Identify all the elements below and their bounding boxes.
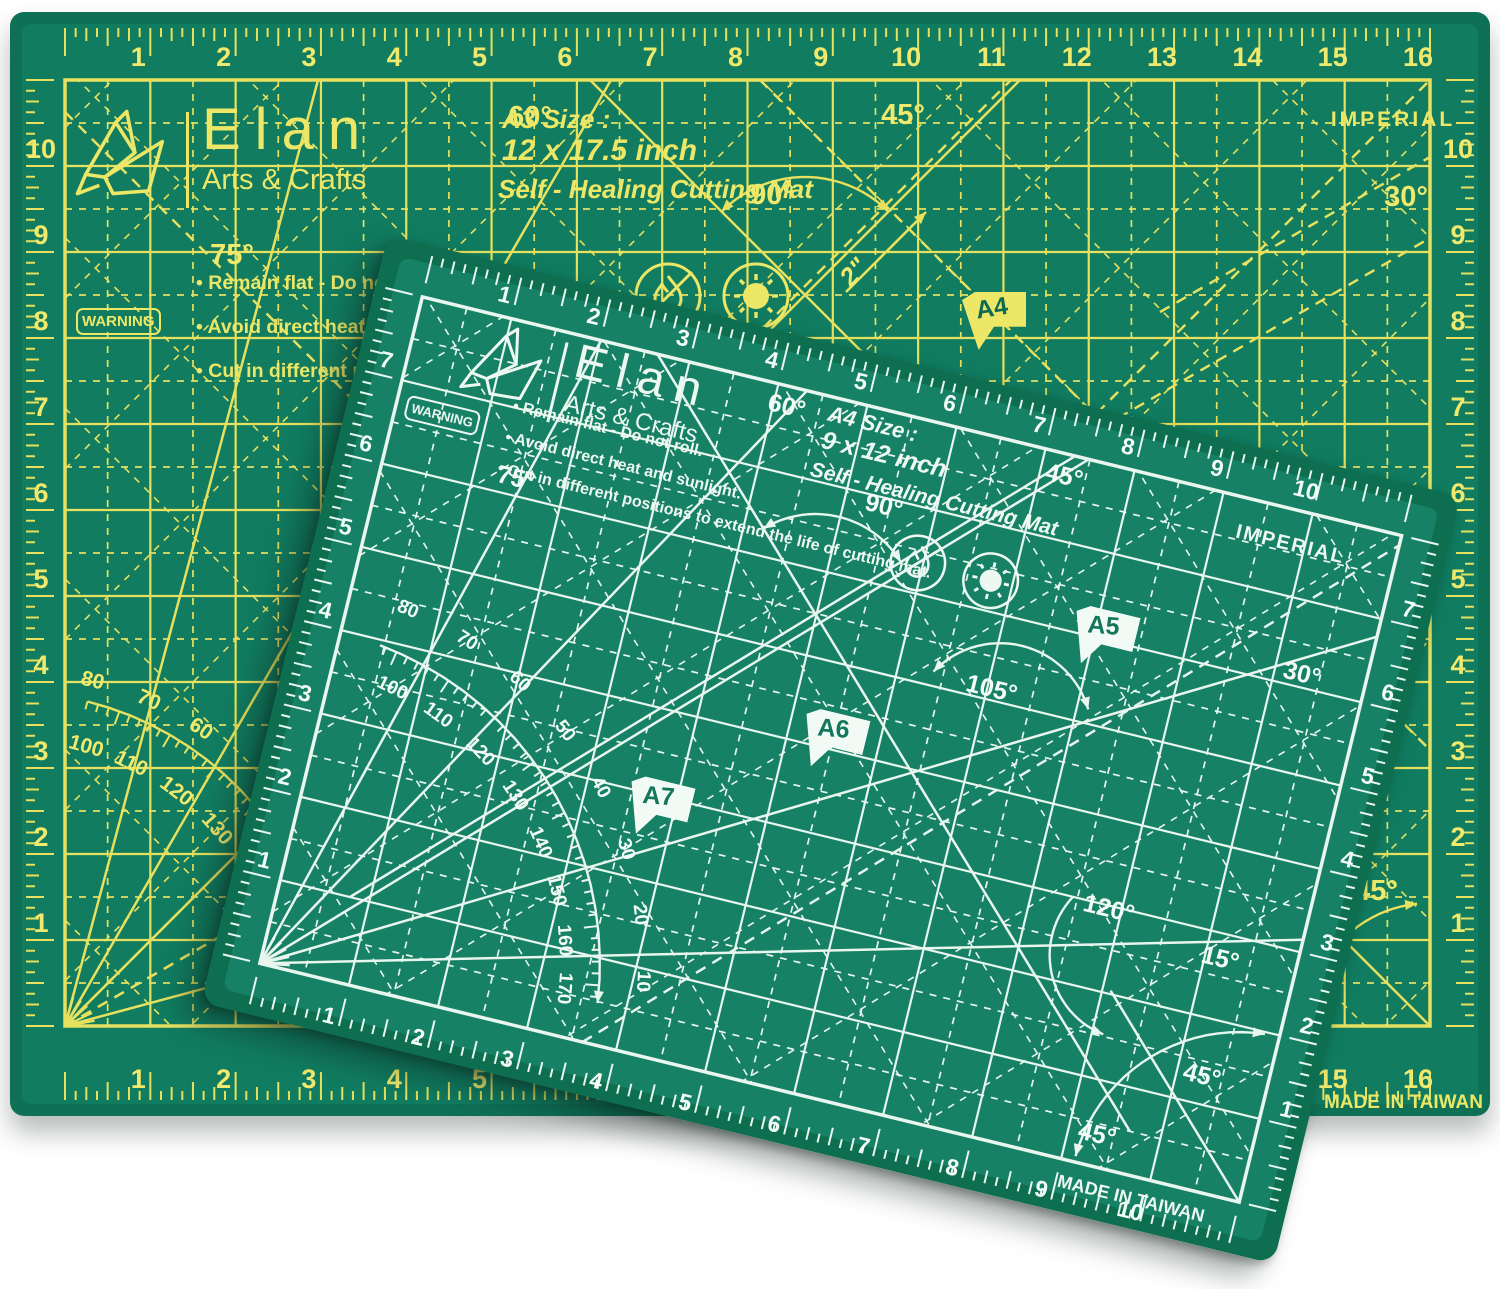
ruler-number-bottom: 2 <box>216 1064 231 1094</box>
ruler-number-bottom: 15 <box>1318 1064 1348 1094</box>
ruler-number-top: 2 <box>216 42 231 72</box>
ruler-number-right: 3 <box>1450 736 1465 766</box>
ruler-number-left: 10 <box>26 134 56 164</box>
elan-logo-icon <box>74 106 174 210</box>
ruler-number-right: 7 <box>1450 392 1465 422</box>
size-dimensions: 12 x 17.5 inch <box>502 134 697 168</box>
brand-name: Elan <box>202 96 374 163</box>
ruler-number-left: 7 <box>33 392 48 422</box>
angle-label: 30° <box>1384 181 1428 213</box>
protractor-number: 160 <box>553 924 576 957</box>
ruler-number-right: 5 <box>1450 564 1465 594</box>
ruler-number-right: 4 <box>1450 650 1465 680</box>
size-label: A3 Size : <box>502 104 610 135</box>
ruler-number-left: 8 <box>33 306 48 336</box>
ruler-number-top: 5 <box>472 42 487 72</box>
ruler-number-top: 3 <box>301 42 316 72</box>
ruler-number-left: 1 <box>33 908 48 938</box>
ruler-number-top: 11 <box>977 42 1006 72</box>
ruler-number-top: 6 <box>557 42 572 72</box>
angle-label: 75° <box>210 239 254 271</box>
ruler-number-right: 10 <box>1443 134 1473 164</box>
ruler-number-top: 8 <box>728 42 743 72</box>
ruler-number-top: 16 <box>1403 42 1433 72</box>
ruler-number-left: 2 <box>33 822 48 852</box>
ruler-number-top: 7 <box>643 42 658 72</box>
ruler-number-left: 6 <box>33 478 48 508</box>
ruler-number-bottom: 16 <box>1403 1064 1433 1094</box>
ruler-number-right: 8 <box>1450 306 1465 336</box>
ruler-number-bottom: 3 <box>301 1064 316 1094</box>
ruler-number-right: 1 <box>1450 908 1465 938</box>
product-photo: 8070601001101201301234567891011121314151… <box>0 0 1500 1289</box>
logo-divider <box>186 112 189 208</box>
ruler-number-top: 10 <box>891 42 921 72</box>
brand-subtitle: Arts & Crafts <box>202 164 366 197</box>
ruler-number-left: 3 <box>33 736 48 766</box>
ruler-number-right: 9 <box>1450 220 1465 250</box>
product-name: Self - Healing Cutting Mat <box>498 174 813 205</box>
ruler-number-top: 9 <box>813 42 828 72</box>
protractor-number: 20 <box>628 903 652 927</box>
ruler-number-top: 12 <box>1062 42 1092 72</box>
ruler-number-left: 5 <box>33 564 48 594</box>
ruler-number-right: 2 <box>1450 822 1465 852</box>
ruler-number-top: 14 <box>1232 42 1262 72</box>
ruler-number-top: 1 <box>131 42 146 72</box>
ruler-number-bottom: 4 <box>387 1064 402 1094</box>
warning-badge: WARNING <box>76 308 161 335</box>
angle-label: 45° <box>881 99 925 131</box>
ruler-number-top: 4 <box>387 42 402 72</box>
ruler-number-top: 13 <box>1147 42 1177 72</box>
no-fire-icon <box>885 530 951 596</box>
protractor-number: 10 <box>632 970 654 992</box>
imperial-label: IMPERIAL <box>1293 108 1490 132</box>
protractor-number: 170 <box>553 972 577 1005</box>
ruler-number-left: 9 <box>33 220 48 250</box>
ruler-number-top: 15 <box>1318 42 1348 72</box>
ruler-number-bottom: 1 <box>131 1064 146 1094</box>
ruler-number-left: 4 <box>33 650 48 680</box>
sun-icon <box>958 548 1024 614</box>
